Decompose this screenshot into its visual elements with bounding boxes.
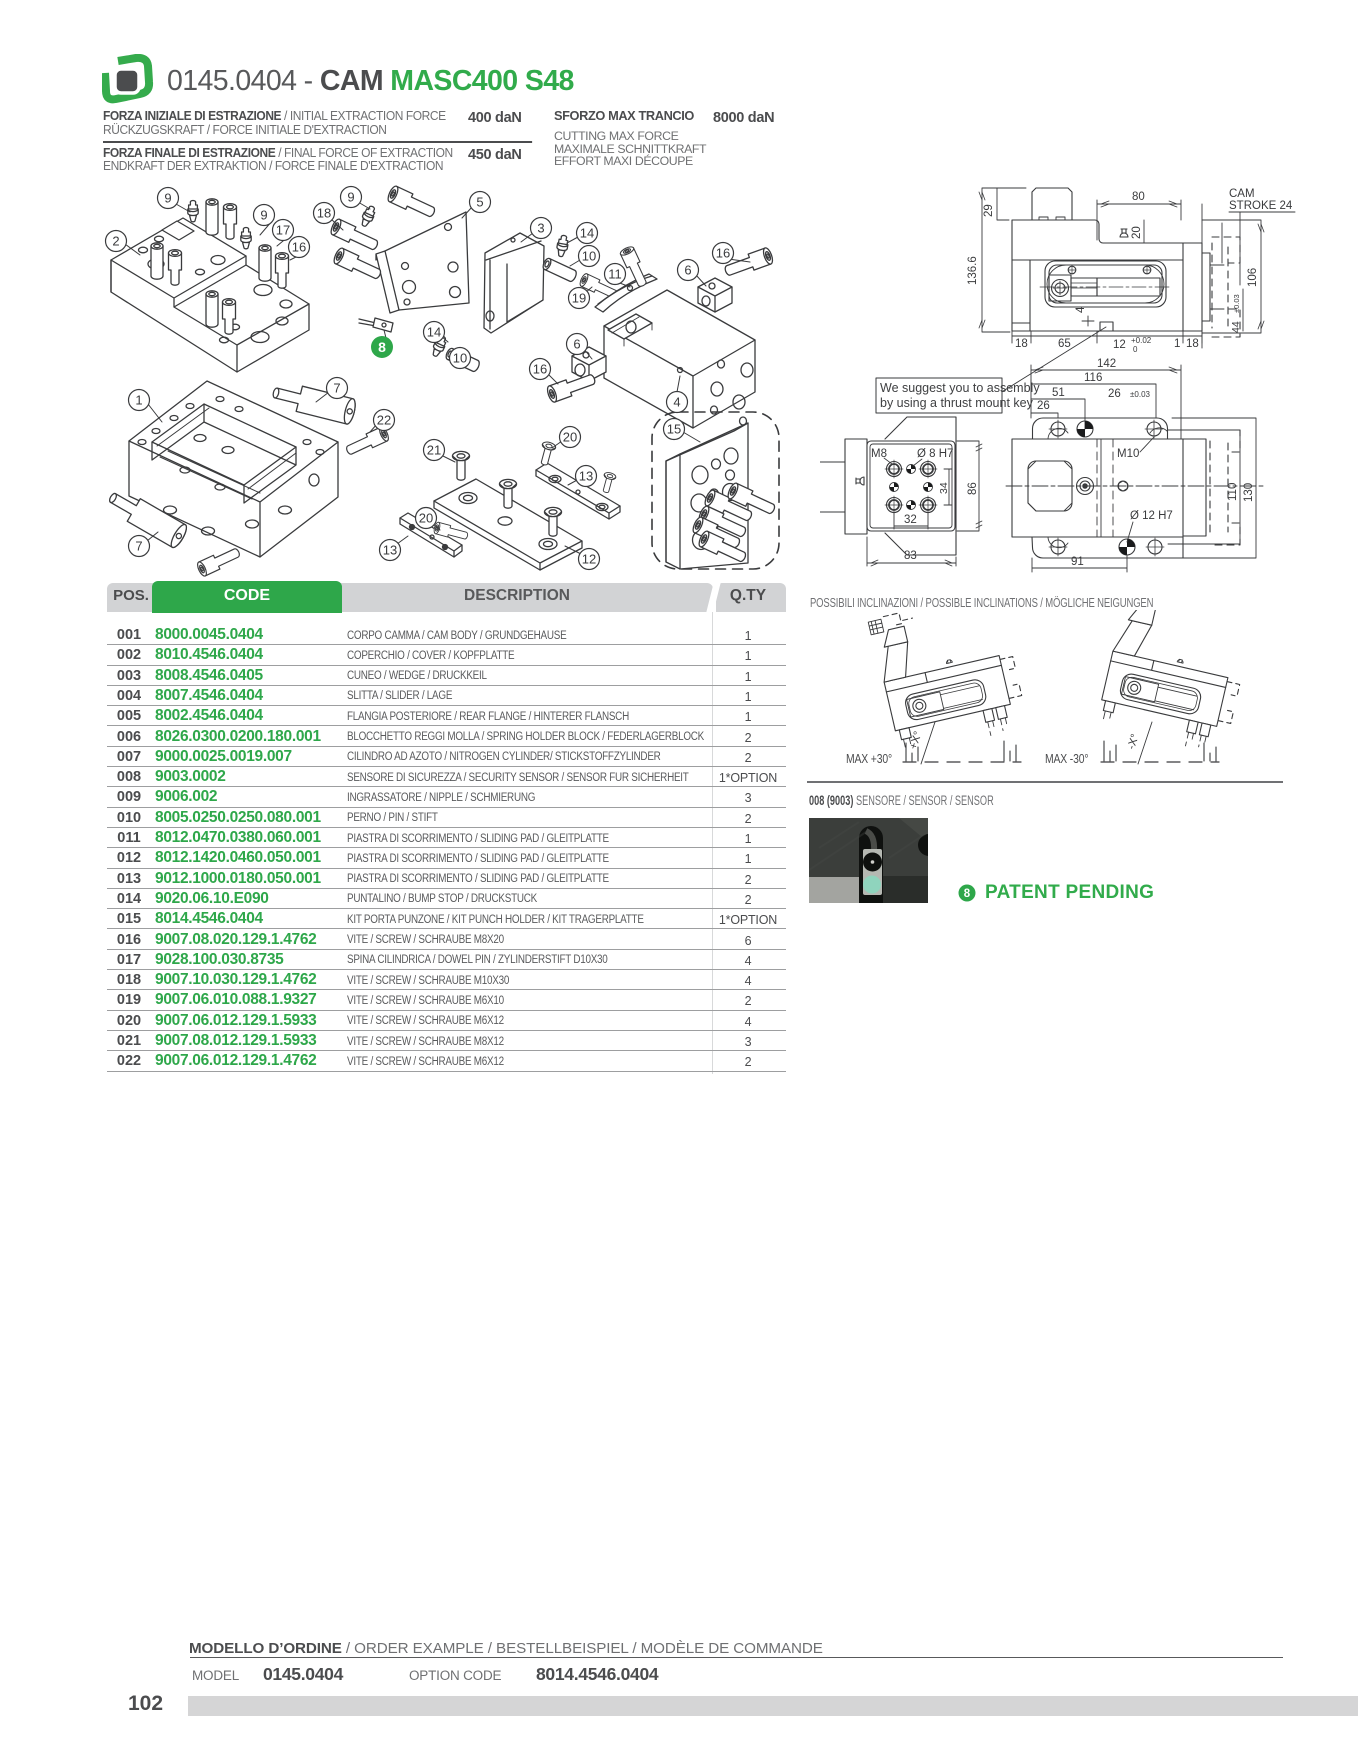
svg-text:We suggest you to assembly: We suggest you to assembly bbox=[880, 381, 1040, 395]
svg-text:+0.02: +0.02 bbox=[1131, 336, 1152, 345]
svg-text:17: 17 bbox=[276, 223, 290, 238]
svg-text:-X°: -X° bbox=[1125, 733, 1141, 751]
svg-text:14: 14 bbox=[427, 325, 441, 340]
svg-text:6: 6 bbox=[684, 263, 691, 278]
svg-text:M10: M10 bbox=[1117, 448, 1139, 460]
svg-text:13: 13 bbox=[383, 543, 397, 558]
svg-text:4: 4 bbox=[1075, 306, 1087, 313]
svg-text:10: 10 bbox=[582, 249, 596, 264]
svg-text:Ø 8 H7: Ø 8 H7 bbox=[917, 448, 953, 460]
svg-text:±0.03: ±0.03 bbox=[1232, 294, 1241, 313]
svg-text:3: 3 bbox=[537, 221, 544, 236]
svg-text:18: 18 bbox=[317, 206, 331, 221]
svg-text:5: 5 bbox=[476, 195, 483, 210]
svg-text:65: 65 bbox=[1058, 338, 1071, 350]
svg-text:7: 7 bbox=[333, 381, 340, 396]
svg-text:20: 20 bbox=[563, 430, 577, 445]
svg-text:83: 83 bbox=[904, 550, 917, 562]
svg-text:34: 34 bbox=[938, 482, 950, 494]
svg-text:18: 18 bbox=[1186, 338, 1199, 350]
svg-text:142: 142 bbox=[1097, 358, 1116, 370]
svg-text:16: 16 bbox=[533, 362, 547, 377]
svg-text:26: 26 bbox=[1037, 400, 1050, 412]
svg-text:116: 116 bbox=[1084, 372, 1102, 384]
svg-text:80: 80 bbox=[1132, 191, 1145, 203]
svg-text:29: 29 bbox=[983, 204, 995, 217]
svg-text:11: 11 bbox=[608, 267, 622, 282]
svg-text:13: 13 bbox=[579, 469, 593, 484]
svg-text:44: 44 bbox=[1230, 321, 1242, 333]
svg-text:130: 130 bbox=[1243, 483, 1255, 502]
svg-text:STROKE 24: STROKE 24 bbox=[1229, 200, 1293, 212]
svg-text:10: 10 bbox=[453, 351, 467, 366]
svg-text:12: 12 bbox=[582, 552, 596, 567]
svg-text:Ø 12 H7: Ø 12 H7 bbox=[1130, 510, 1173, 522]
svg-text:22: 22 bbox=[377, 413, 391, 428]
svg-text:8: 8 bbox=[378, 339, 386, 355]
svg-text:86: 86 bbox=[967, 482, 979, 495]
svg-text:18: 18 bbox=[1015, 338, 1028, 350]
svg-text:6: 6 bbox=[573, 337, 580, 352]
svg-text:9: 9 bbox=[164, 191, 171, 206]
svg-text:1: 1 bbox=[1174, 338, 1180, 350]
svg-text:20: 20 bbox=[419, 511, 433, 526]
svg-text:15: 15 bbox=[667, 422, 681, 437]
svg-text:16: 16 bbox=[716, 246, 730, 261]
svg-text:0: 0 bbox=[1133, 345, 1138, 354]
svg-text:32: 32 bbox=[904, 514, 917, 526]
svg-text:106: 106 bbox=[1247, 268, 1259, 287]
svg-text:7: 7 bbox=[135, 539, 142, 554]
svg-text:1: 1 bbox=[135, 393, 142, 408]
svg-text:CAM: CAM bbox=[1229, 188, 1255, 200]
svg-text:51: 51 bbox=[1052, 387, 1065, 399]
svg-text:±0.03: ±0.03 bbox=[1130, 390, 1151, 399]
svg-text:12: 12 bbox=[1113, 339, 1126, 351]
svg-text:9: 9 bbox=[347, 190, 354, 205]
svg-text:14: 14 bbox=[580, 226, 594, 241]
svg-text:136.6: 136.6 bbox=[967, 256, 979, 285]
svg-text:91: 91 bbox=[1071, 556, 1084, 568]
svg-text:19: 19 bbox=[572, 291, 586, 306]
svg-text:9: 9 bbox=[260, 208, 267, 223]
svg-text:by using a thrust mount key: by using a thrust mount key bbox=[880, 396, 1034, 410]
svg-text:4: 4 bbox=[673, 395, 680, 410]
svg-text:110: 110 bbox=[1227, 483, 1239, 501]
svg-text:8: 8 bbox=[964, 888, 971, 900]
svg-text:2: 2 bbox=[112, 234, 119, 249]
svg-text:26: 26 bbox=[1108, 388, 1121, 400]
svg-text:16: 16 bbox=[292, 240, 306, 255]
svg-text:21: 21 bbox=[427, 443, 441, 458]
svg-text:20: 20 bbox=[1131, 226, 1143, 239]
